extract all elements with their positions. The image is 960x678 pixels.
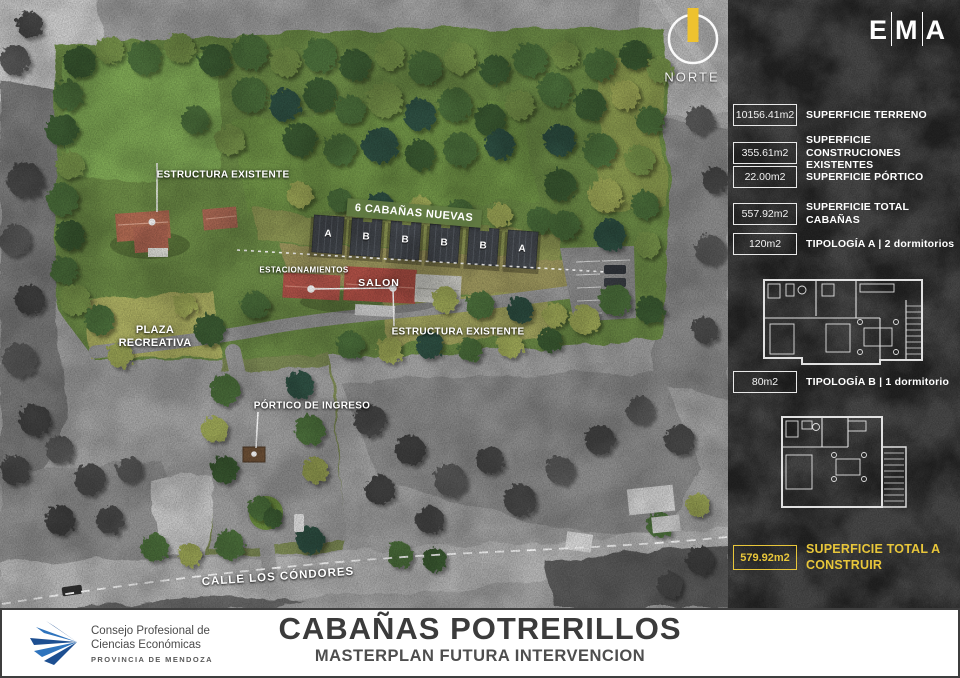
map-illustration: [0, 0, 728, 608]
north-label: NORTE: [664, 70, 719, 85]
label-estructura-existente-top: ESTRUCTURA EXISTENTE: [157, 170, 290, 181]
masterplan-map: ESTRUCTURA EXISTENTE 6 CABAÑAS NUEVAS A …: [0, 0, 728, 608]
metric-label: SUPERFICIE TOTAL CABAÑAS: [806, 201, 957, 226]
label-salon: SALON: [358, 277, 400, 289]
logo-divider: [922, 12, 923, 46]
sheet-title-block: CABAÑAS POTRERILLOS MASTERPLAN FUTURA IN…: [2, 612, 958, 666]
logo-divider: [891, 12, 892, 46]
label-estructura-existente-bottom: ESTRUCTURA EXISTENTE: [392, 327, 525, 338]
metric-row-tipologia-b: 80m2 TIPOLOGÍA B | 1 dormitorio: [733, 371, 957, 393]
total-value: 579.92m2: [733, 545, 797, 570]
metric-row-portico: 22.00m2 SUPERFICIE PÓRTICO: [733, 166, 957, 188]
metric-row-total-construir: 579.92m2 SUPERFICIE TOTAL A CONSTRUIR: [733, 542, 957, 573]
label-estacionamientos: ESTACIONAMIENTOS: [259, 266, 348, 275]
ema-letter: E: [869, 17, 888, 44]
metric-row-total-cabanas: 557.92m2 SUPERFICIE TOTAL CABAÑAS: [733, 201, 957, 226]
metric-value: 557.92m2: [733, 203, 797, 225]
metric-value: 80m2: [733, 371, 797, 393]
metric-label: SUPERFICIE PÓRTICO: [806, 171, 923, 184]
cabin-letter: B: [362, 231, 370, 242]
metric-label: SUPERFICIE TERRENO: [806, 109, 927, 122]
label-plaza-recreativa: PLAZA RECREATIVA: [119, 324, 192, 350]
metric-value: 10156.41m2: [733, 104, 797, 126]
ema-logo: EMA: [869, 10, 946, 44]
cabin-letter: B: [440, 237, 448, 248]
cabin-letter: B: [479, 240, 487, 251]
floorplan-tipologia-a: [760, 272, 926, 368]
metric-value: 355.61m2: [733, 142, 797, 164]
metric-value: 22.00m2: [733, 166, 797, 188]
floorplan-tipologia-b: [778, 409, 911, 516]
title-bar: Consejo Profesional de Ciencias Económic…: [0, 608, 960, 678]
ema-letter: A: [926, 17, 947, 44]
sheet-title: CABAÑAS POTRERILLOS: [2, 612, 958, 646]
metric-row-tipologia-a: 120m2 TIPOLOGÍA A | 2 dormitorios: [733, 233, 957, 255]
label-portico-de-ingreso: PÓRTICO DE INGRESO: [254, 401, 371, 412]
cabin-letter: B: [401, 234, 409, 245]
metric-label: TIPOLOGÍA B | 1 dormitorio: [806, 376, 949, 389]
data-sidebar: EMA 10156.41m2 SUPERFICIE TERRENO 355.61…: [728, 0, 960, 608]
cabin-letter: A: [518, 243, 526, 254]
cabin-letter: A: [324, 228, 332, 239]
sheet-subtitle: MASTERPLAN FUTURA INTERVENCION: [2, 647, 958, 666]
metric-label: TIPOLOGÍA A | 2 dormitorios: [806, 238, 954, 251]
metric-value: 120m2: [733, 233, 797, 255]
masterplan-sheet: ESTRUCTURA EXISTENTE 6 CABAÑAS NUEVAS A …: [0, 0, 960, 678]
total-label: SUPERFICIE TOTAL A CONSTRUIR: [806, 542, 946, 573]
ema-letter: M: [895, 17, 919, 44]
metric-row-terreno: 10156.41m2 SUPERFICIE TERRENO: [733, 104, 957, 126]
